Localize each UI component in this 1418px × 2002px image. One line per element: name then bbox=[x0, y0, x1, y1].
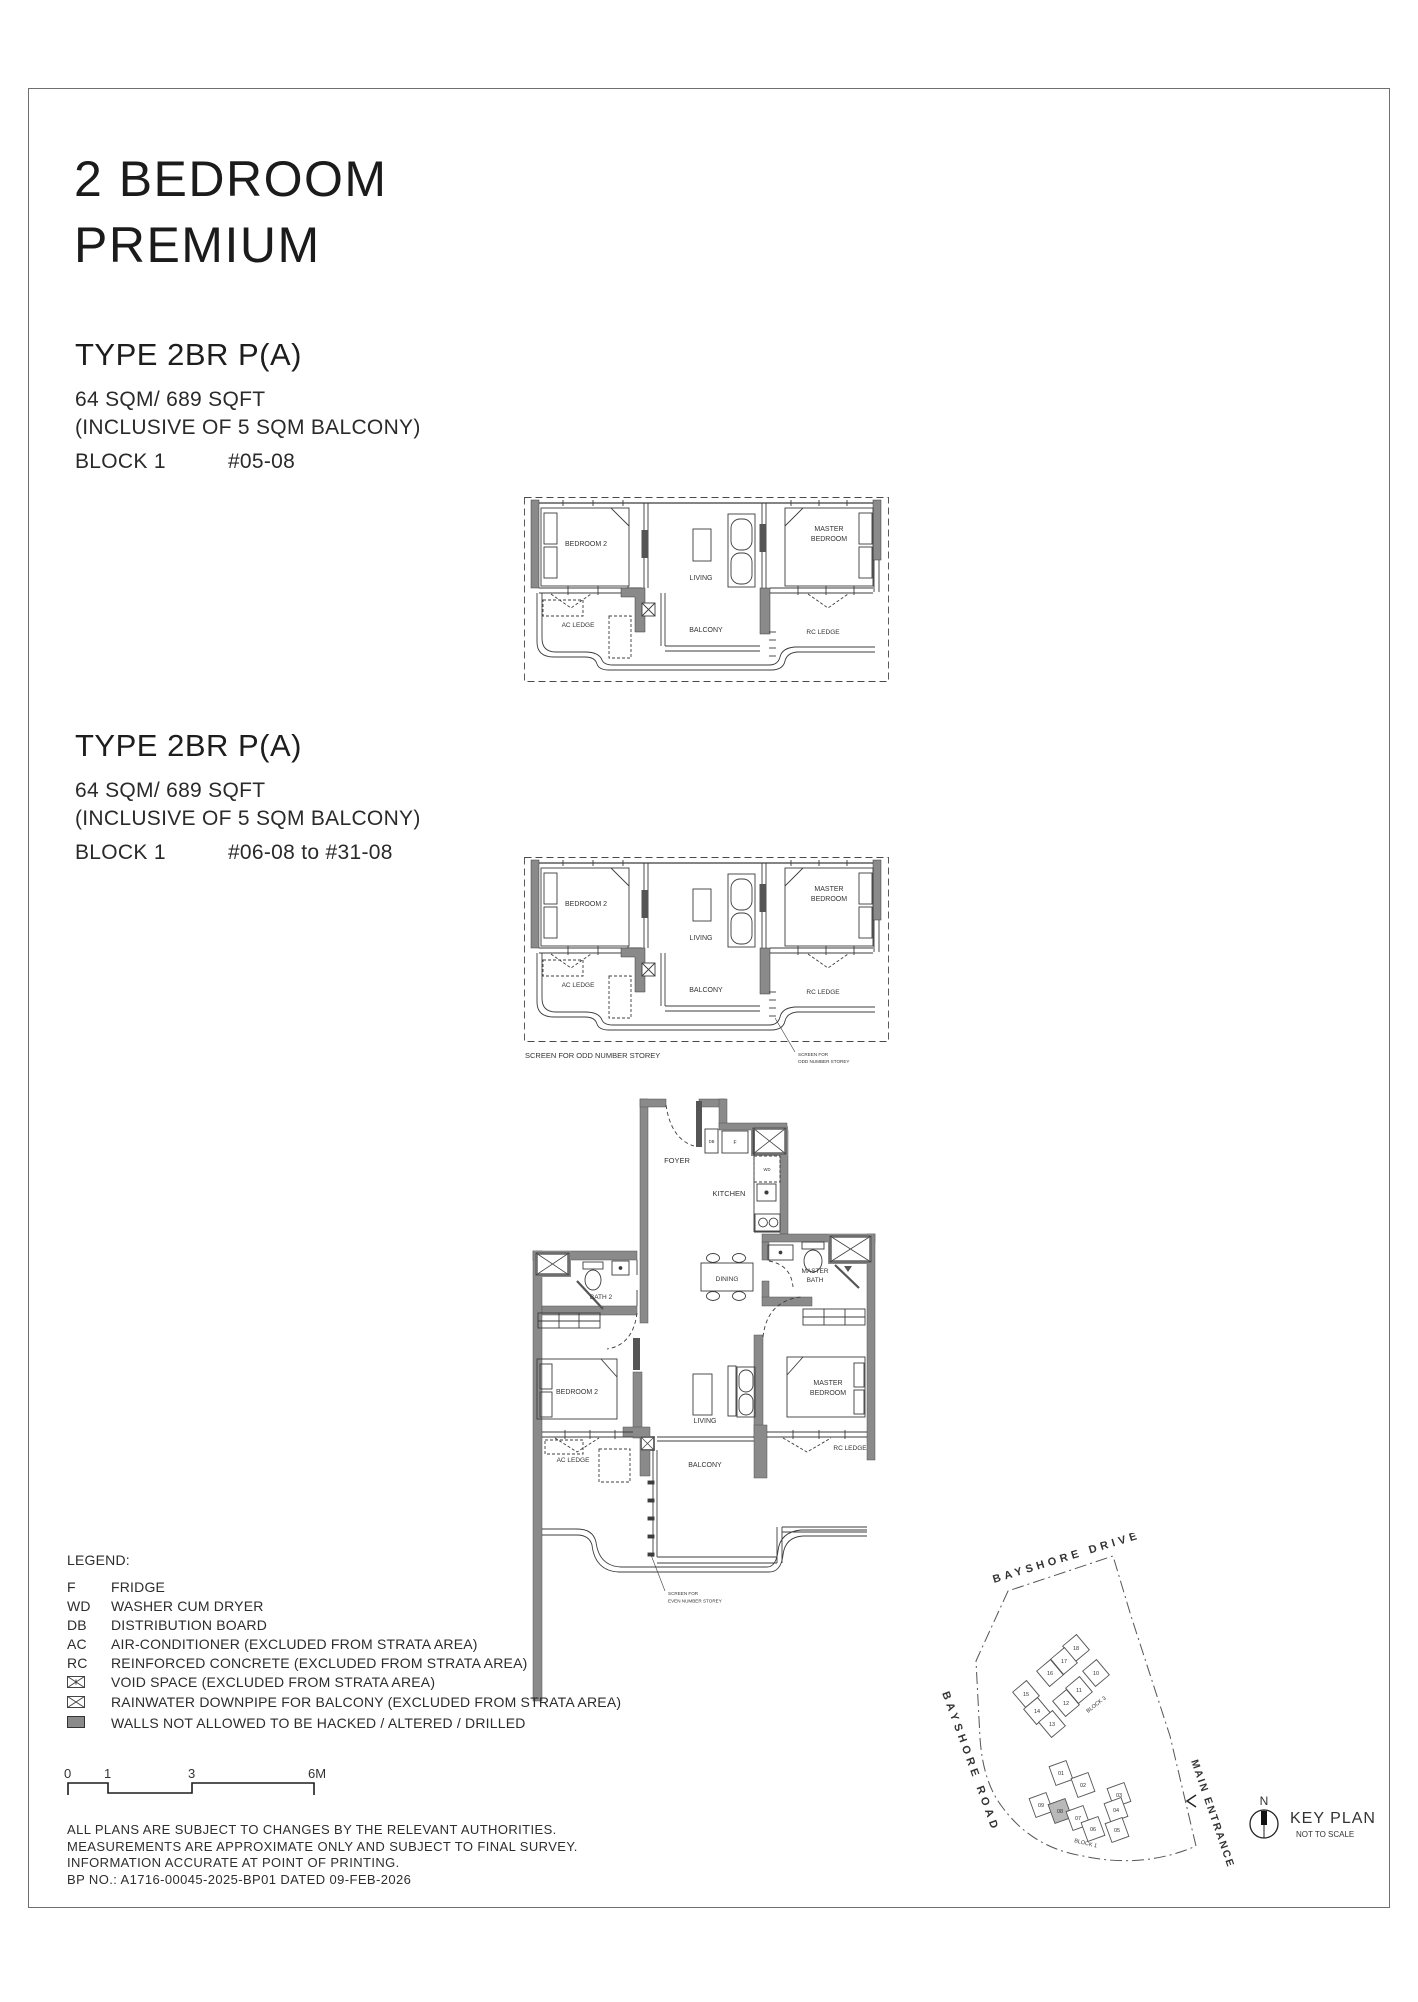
block1-label: BLOCK 1 bbox=[1074, 1838, 1098, 1849]
scale-tick-1: 1 bbox=[104, 1768, 111, 1781]
legend-desc: DISTRIBUTION BOARD bbox=[111, 1615, 621, 1634]
type-heading: TYPE 2BR P(A) bbox=[75, 728, 421, 764]
label-ac-ledge: AC LEDGE bbox=[562, 982, 596, 989]
label-rc-ledge: RC LEDGE bbox=[806, 629, 840, 636]
unit-number: 06 bbox=[1090, 1827, 1096, 1833]
room-label-living: LIVING bbox=[690, 575, 713, 582]
entrance-arrow-icon bbox=[1187, 1795, 1196, 1807]
disclaimer: ALL PLANS ARE SUBJECT TO CHANGES BY THE … bbox=[67, 1822, 578, 1888]
screen-callout-line1: SCREEN FOR bbox=[798, 1052, 829, 1057]
floor-plan-upper: BEDROOM 2 LIVING MASTER BEDROOM AC LEDGE… bbox=[523, 496, 891, 692]
unit-number: 12 bbox=[1063, 1701, 1069, 1707]
legend-desc: AIR-CONDITIONER (EXCLUDED FROM STRATA AR… bbox=[111, 1634, 621, 1653]
block-row: BLOCK 1 #05-08 bbox=[75, 450, 421, 474]
type-heading: TYPE 2BR P(A) bbox=[75, 337, 421, 373]
legend-heading: LEGEND: bbox=[67, 1552, 621, 1568]
void-space-icon bbox=[67, 1675, 85, 1691]
unit-number: 17 bbox=[1061, 1659, 1067, 1665]
floor-plan-lower: BEDROOM 2 LIVING MASTER BEDROOM AC LEDGE… bbox=[523, 856, 891, 1070]
block3-label: BLOCK 3 bbox=[1086, 1696, 1108, 1715]
legend-row: RCREINFORCED CONCRETE (EXCLUDED FROM STR… bbox=[67, 1653, 621, 1672]
room-label-master-2: BEDROOM bbox=[810, 1390, 846, 1397]
compass-n: N bbox=[1260, 1794, 1269, 1808]
label-rc-ledge: RC LEDGE bbox=[833, 1445, 867, 1452]
unit-number: 07 bbox=[1075, 1816, 1081, 1822]
room-label-dining: DINING bbox=[716, 1276, 739, 1283]
legend-row: FFRIDGE bbox=[67, 1577, 621, 1596]
legend-row: WDWASHER CUM DRYER bbox=[67, 1596, 621, 1615]
room-label-master-1: MASTER bbox=[814, 886, 843, 893]
room-label-bath2: BATH 2 bbox=[590, 1294, 613, 1301]
legend-row: WALLS NOT ALLOWED TO BE HACKED / ALTERED… bbox=[67, 1713, 621, 1733]
unit-type-section-2: TYPE 2BR P(A) 64 SQM/ 689 SQFT (INCLUSIV… bbox=[75, 728, 421, 865]
unit-type-section-1: TYPE 2BR P(A) 64 SQM/ 689 SQFT (INCLUSIV… bbox=[75, 337, 421, 474]
road-label-bayshore-drive: BAYSHORE DRIVE bbox=[991, 1533, 1142, 1586]
key-plan-subtitle: NOT TO SCALE bbox=[1296, 1830, 1354, 1839]
legend-key: DB bbox=[67, 1615, 111, 1634]
block1-cluster: 01 02 03 09 08 07 04 06 05 BLOCK 1 bbox=[1029, 1761, 1131, 1850]
main-entrance-label: MAIN ENTRANCE bbox=[1188, 1758, 1236, 1870]
legend-key: RC bbox=[67, 1653, 111, 1672]
unit-number: 04 bbox=[1113, 1808, 1119, 1814]
block-label: BLOCK 1 bbox=[75, 450, 166, 473]
legend-key: F bbox=[67, 1577, 111, 1596]
unit-number: 08 bbox=[1057, 1809, 1063, 1815]
room-label-bedroom2: BEDROOM 2 bbox=[565, 901, 607, 908]
scale-bar: 0 1 3 6M bbox=[64, 1768, 364, 1808]
disclaimer-line: ALL PLANS ARE SUBJECT TO CHANGES BY THE … bbox=[67, 1822, 578, 1839]
screen-callout-line2: EVEN NUMBER STOREY bbox=[668, 1599, 722, 1604]
unit-number: 11 bbox=[1076, 1688, 1082, 1694]
room-label-master-2: BEDROOM bbox=[811, 536, 847, 543]
legend-desc: WASHER CUM DRYER bbox=[111, 1596, 621, 1615]
unit-number: 10 bbox=[1093, 1671, 1099, 1677]
wall-hatch-icon bbox=[67, 1715, 85, 1731]
label-rc-ledge: RC LEDGE bbox=[806, 989, 840, 996]
unit-number: 13 bbox=[1049, 1722, 1055, 1728]
area-text: 64 SQM/ 689 SQFT bbox=[75, 777, 421, 805]
unit-numbers: #06-08 to #31-08 bbox=[228, 841, 393, 864]
screen-callout-line2: ODD NUMBER STOREY bbox=[798, 1059, 849, 1064]
label-balcony: BALCONY bbox=[689, 987, 723, 994]
legend-desc: REINFORCED CONCRETE (EXCLUDED FROM STRAT… bbox=[111, 1653, 621, 1672]
room-label-living: LIVING bbox=[690, 935, 713, 942]
room-label-master-1: MASTER bbox=[813, 1380, 842, 1387]
legend-row: VOID SPACE (EXCLUDED FROM STRATA AREA) bbox=[67, 1672, 621, 1692]
unit-number: 18 bbox=[1073, 1646, 1079, 1652]
legend-row: RAINWATER DOWNPIPE FOR BALCONY (EXCLUDED… bbox=[67, 1692, 621, 1712]
room-label-living: LIVING bbox=[694, 1418, 717, 1425]
label-ac-ledge: AC LEDGE bbox=[562, 622, 596, 629]
unit-number: 02 bbox=[1080, 1783, 1086, 1789]
legend-key: AC bbox=[67, 1634, 111, 1653]
balcony-note: (INCLUSIVE OF 5 SQM BALCONY) bbox=[75, 805, 421, 833]
title-line-2: PREMIUM bbox=[74, 217, 321, 273]
legend: LEGEND: FFRIDGE WDWASHER CUM DRYER DBDIS… bbox=[67, 1552, 621, 1733]
legend-desc: VOID SPACE (EXCLUDED FROM STRATA AREA) bbox=[111, 1672, 621, 1692]
scale-tick-3: 3 bbox=[188, 1768, 195, 1781]
block3-cluster: 18 17 16 10 15 11 12 14 13 BLOCK 3 bbox=[1013, 1635, 1110, 1738]
unit-number: 16 bbox=[1047, 1671, 1053, 1677]
disclaimer-line: MEASUREMENTS ARE APPROXIMATE ONLY AND SU… bbox=[67, 1839, 578, 1856]
room-label-bedroom2: BEDROOM 2 bbox=[556, 1389, 598, 1396]
title-line-1: 2 BEDROOM bbox=[74, 151, 388, 207]
legend-row: ACAIR-CONDITIONER (EXCLUDED FROM STRATA … bbox=[67, 1634, 621, 1653]
page-title: 2 BEDROOM PREMIUM bbox=[74, 146, 388, 278]
rainwater-downpipe-icon bbox=[67, 1695, 85, 1711]
label-balcony: BALCONY bbox=[689, 627, 723, 634]
unit-number: 05 bbox=[1114, 1828, 1120, 1834]
legend-key: WD bbox=[67, 1596, 111, 1615]
room-label-foyer: FOYER bbox=[664, 1156, 690, 1165]
screen-callout-line1: SCREEN FOR bbox=[668, 1591, 699, 1596]
key-plan: BAYSHORE DRIVE BAYSHORE ROAD MAIN ENTRAN… bbox=[928, 1533, 1393, 1933]
screen-note-odd: SCREEN FOR ODD NUMBER STOREY bbox=[525, 1051, 660, 1060]
legend-desc: RAINWATER DOWNPIPE FOR BALCONY (EXCLUDED… bbox=[111, 1692, 621, 1712]
road-label-bayshore-road: BAYSHORE ROAD bbox=[939, 1690, 1001, 1834]
label-wd: WD bbox=[764, 1167, 771, 1172]
block-label: BLOCK 1 bbox=[75, 841, 166, 864]
legend-desc: FRIDGE bbox=[111, 1577, 621, 1596]
balcony-note: (INCLUSIVE OF 5 SQM BALCONY) bbox=[75, 414, 421, 442]
room-label-master-bath-2: BATH bbox=[807, 1277, 824, 1284]
legend-row: DBDISTRIBUTION BOARD bbox=[67, 1615, 621, 1634]
room-label-kitchen: KITCHEN bbox=[713, 1189, 746, 1198]
room-label-bedroom2: BEDROOM 2 bbox=[565, 541, 607, 548]
label-balcony: BALCONY bbox=[688, 1462, 722, 1469]
area-text: 64 SQM/ 689 SQFT bbox=[75, 386, 421, 414]
room-label-master-bath-1: MASTER bbox=[801, 1268, 828, 1275]
scale-tick-0: 0 bbox=[64, 1768, 71, 1781]
legend-desc: WALLS NOT ALLOWED TO BE HACKED / ALTERED… bbox=[111, 1713, 621, 1733]
unit-number: 14 bbox=[1034, 1709, 1040, 1715]
unit-number: 09 bbox=[1038, 1803, 1044, 1809]
room-label-master-1: MASTER bbox=[814, 526, 843, 533]
unit-numbers: #05-08 bbox=[228, 450, 295, 473]
disclaimer-line: INFORMATION ACCURATE AT POINT OF PRINTIN… bbox=[67, 1855, 578, 1872]
room-label-master-2: BEDROOM bbox=[811, 896, 847, 903]
unit-number: 01 bbox=[1058, 1771, 1064, 1777]
north-compass-icon: N bbox=[1250, 1794, 1278, 1838]
label-fridge: F bbox=[733, 1140, 736, 1146]
disclaimer-line: BP NO.: A1716-00045-2025-BP01 DATED 09-F… bbox=[67, 1872, 578, 1889]
scale-tick-6m: 6M bbox=[308, 1768, 326, 1781]
unit-number: 15 bbox=[1023, 1692, 1029, 1698]
label-db: DB bbox=[709, 1139, 715, 1144]
key-plan-title: KEY PLAN bbox=[1290, 1810, 1376, 1827]
label-ac-ledge: AC LEDGE bbox=[557, 1457, 591, 1464]
block-row: BLOCK 1 #06-08 to #31-08 bbox=[75, 841, 421, 865]
